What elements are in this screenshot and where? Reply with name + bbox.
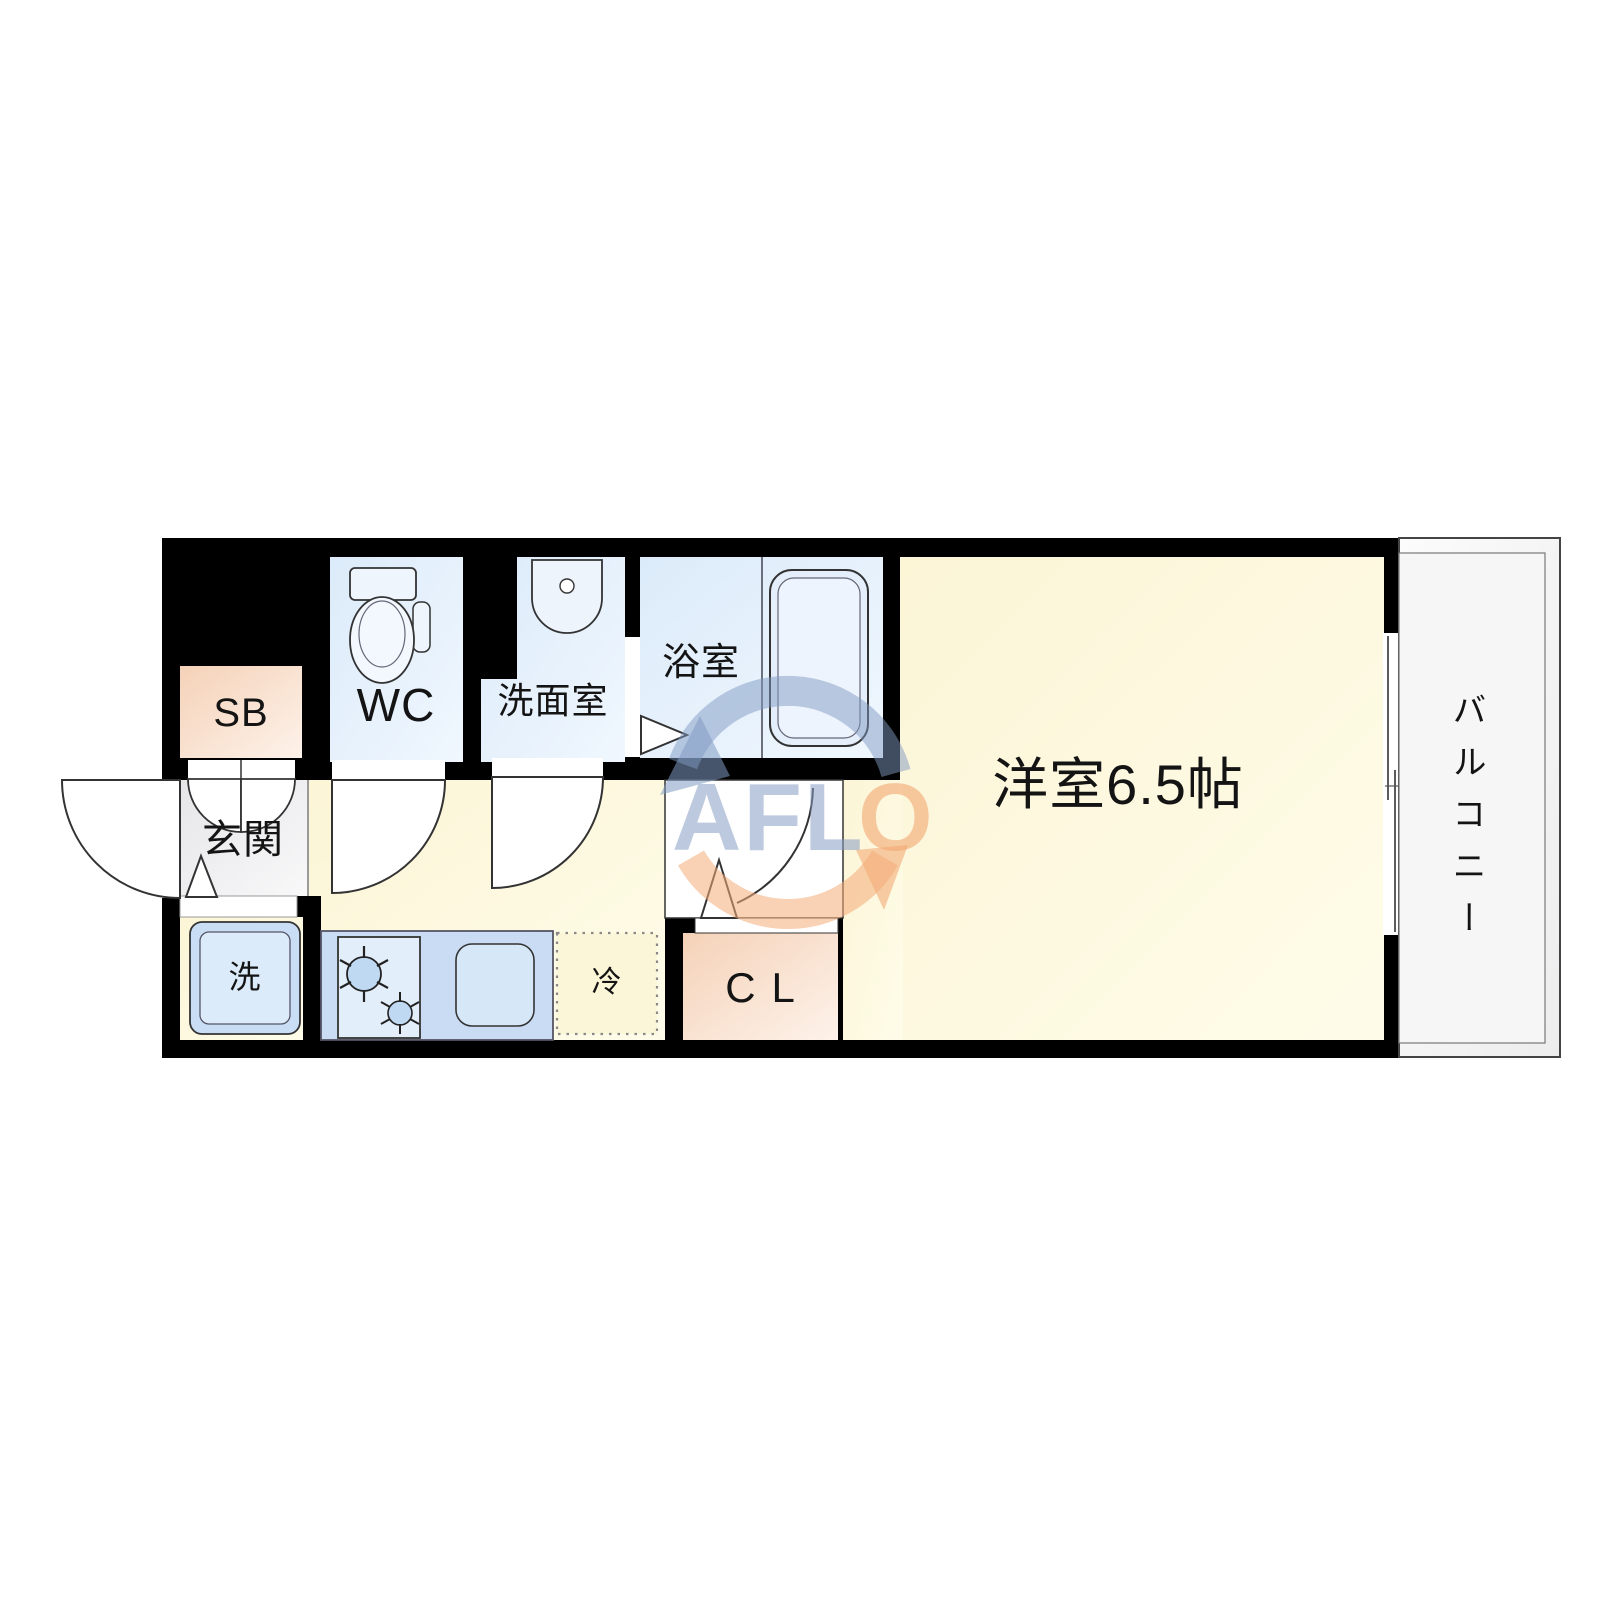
kitchen-sink-icon — [456, 944, 534, 1026]
opening-bathroom-door — [625, 637, 640, 757]
floorplan-drawing: AFL O — [0, 0, 1600, 1600]
room-label-washing-machine: 洗 — [228, 961, 261, 993]
room-label-shoe-box: SB — [213, 693, 268, 733]
toilet-flush-icon — [413, 602, 430, 652]
wall-washroom-block — [481, 557, 517, 679]
room-label-balcony: バルコニー — [1449, 692, 1483, 952]
floorplan-canvas: AFL O SB WC 洗面室 浴室 玄関 洗 冷 CL 洋室6.5帖 バルコニ… — [0, 0, 1600, 1600]
wall-washer-right — [303, 917, 321, 1040]
watermark-text-primary: AFL — [672, 764, 865, 871]
room-label-washroom: 洗面室 — [497, 683, 608, 719]
balcony-window — [1383, 633, 1400, 935]
sink-drain-icon — [560, 579, 574, 593]
toilet-tank-icon — [350, 568, 416, 600]
threshold-washer-nook — [180, 896, 297, 917]
watermark-text-accent: O — [858, 764, 933, 871]
room-label-bathroom: 浴室 — [662, 644, 740, 682]
room-label-closet: CL — [725, 967, 811, 1009]
entry-door-swing — [62, 780, 180, 898]
room-label-refrigerator: 冷 — [592, 968, 623, 998]
room-label-entrance: 玄関 — [202, 820, 284, 860]
sink-icon — [532, 560, 602, 633]
wall-entrance-stub — [297, 896, 321, 917]
room-label-western-room: 洋室6.5帖 — [992, 757, 1244, 813]
room-label-wc: WC — [357, 682, 436, 728]
opening-wc-door — [332, 760, 445, 780]
